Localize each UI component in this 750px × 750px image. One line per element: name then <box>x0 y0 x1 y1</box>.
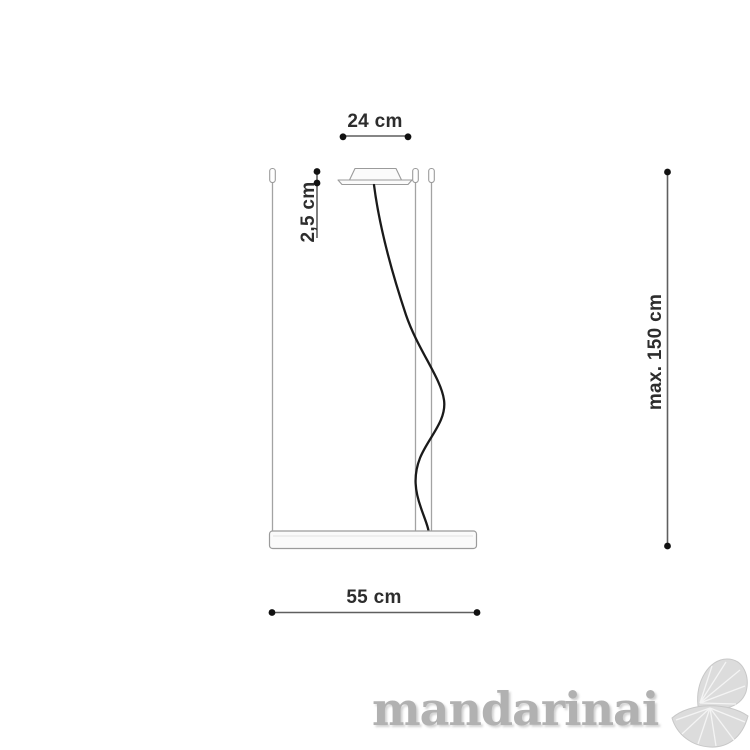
watermark-text: mandarinai <box>372 686 658 732</box>
power-cable <box>374 185 444 531</box>
mandarin-upper-segment <box>698 659 748 709</box>
lamp-dimension-diagram: 24 cm 2,5 cm max. 150 cm 55 cm mandarina… <box>0 0 750 750</box>
mandarin-slices-icon <box>660 650 750 750</box>
canopy-width-label: 24 cm <box>305 110 445 134</box>
lamp-ring-bar <box>270 531 477 549</box>
dimension-line-fixture-width <box>269 609 481 616</box>
dimension-line-canopy-width <box>340 133 412 140</box>
ceiling-canopy <box>338 169 412 185</box>
max-drop-label: max. 150 cm <box>644 272 668 432</box>
mandarin-lower-segment <box>672 706 748 747</box>
fixture-width-label: 55 cm <box>304 586 444 610</box>
canopy-height-label: 2,5 cm <box>297 132 321 292</box>
